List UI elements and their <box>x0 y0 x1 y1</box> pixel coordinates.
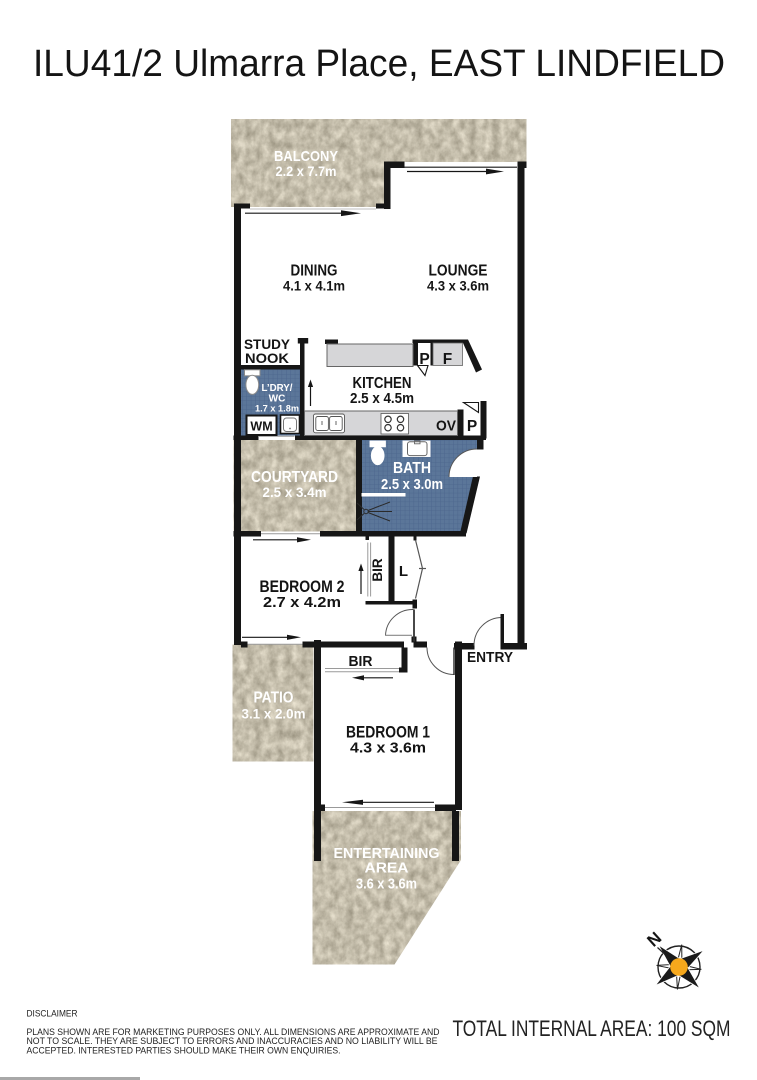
svg-text:2.2 x 7.7m: 2.2 x 7.7m <box>276 164 337 179</box>
svg-text:F: F <box>443 351 452 368</box>
svg-text:OV: OV <box>436 418 456 435</box>
svg-text:4.1 x 4.1m: 4.1 x 4.1m <box>283 278 345 294</box>
svg-text:2.5 x 4.5m: 2.5 x 4.5m <box>350 391 414 407</box>
svg-text:TOTAL INTERNAL AREA: 100 SQM: TOTAL INTERNAL AREA: 100 SQM <box>453 1016 731 1041</box>
svg-text:2.5 x 3.4m: 2.5 x 3.4m <box>263 484 327 500</box>
svg-text:BALCONY: BALCONY <box>274 148 338 165</box>
svg-text:4.3 x 3.6m: 4.3 x 3.6m <box>427 278 489 294</box>
svg-text:4.3 x 3.6m: 4.3 x 3.6m <box>350 740 426 757</box>
svg-text:3.1 x 2.0m: 3.1 x 2.0m <box>242 706 306 722</box>
svg-text:WM: WM <box>250 420 272 434</box>
svg-text:L: L <box>399 563 408 580</box>
svg-text:BIR: BIR <box>370 558 385 582</box>
svg-text:ILU41/2 Ulmarra Place, EAST LI: ILU41/2 Ulmarra Place, EAST LINDFIELD <box>33 43 725 85</box>
svg-text:P: P <box>467 418 477 435</box>
svg-text:PATIO: PATIO <box>254 690 294 707</box>
svg-text:NOOK: NOOK <box>245 351 289 366</box>
svg-text:ACCEPTED. INTERESTED PARTIES S: ACCEPTED. INTERESTED PARTIES SHOULD MAKE… <box>27 1046 341 1056</box>
svg-text:2.5 x 3.0m: 2.5 x 3.0m <box>381 477 443 493</box>
svg-text:STUDY: STUDY <box>244 337 290 352</box>
svg-text:DISCLAIMER: DISCLAIMER <box>27 1009 78 1019</box>
svg-text:L’DRY/: L’DRY/ <box>262 383 293 394</box>
svg-text:2.7 x 4.2m: 2.7 x 4.2m <box>263 594 341 611</box>
svg-text:3.6 x 3.6m: 3.6 x 3.6m <box>356 877 417 893</box>
svg-text:AREA: AREA <box>365 861 410 877</box>
svg-text:ENTRY: ENTRY <box>467 650 513 666</box>
svg-text:1.7 x 1.8m: 1.7 x 1.8m <box>255 404 299 414</box>
svg-text:KITCHEN: KITCHEN <box>353 375 412 392</box>
svg-text:BIR: BIR <box>349 654 373 670</box>
svg-text:BATH: BATH <box>393 460 431 477</box>
